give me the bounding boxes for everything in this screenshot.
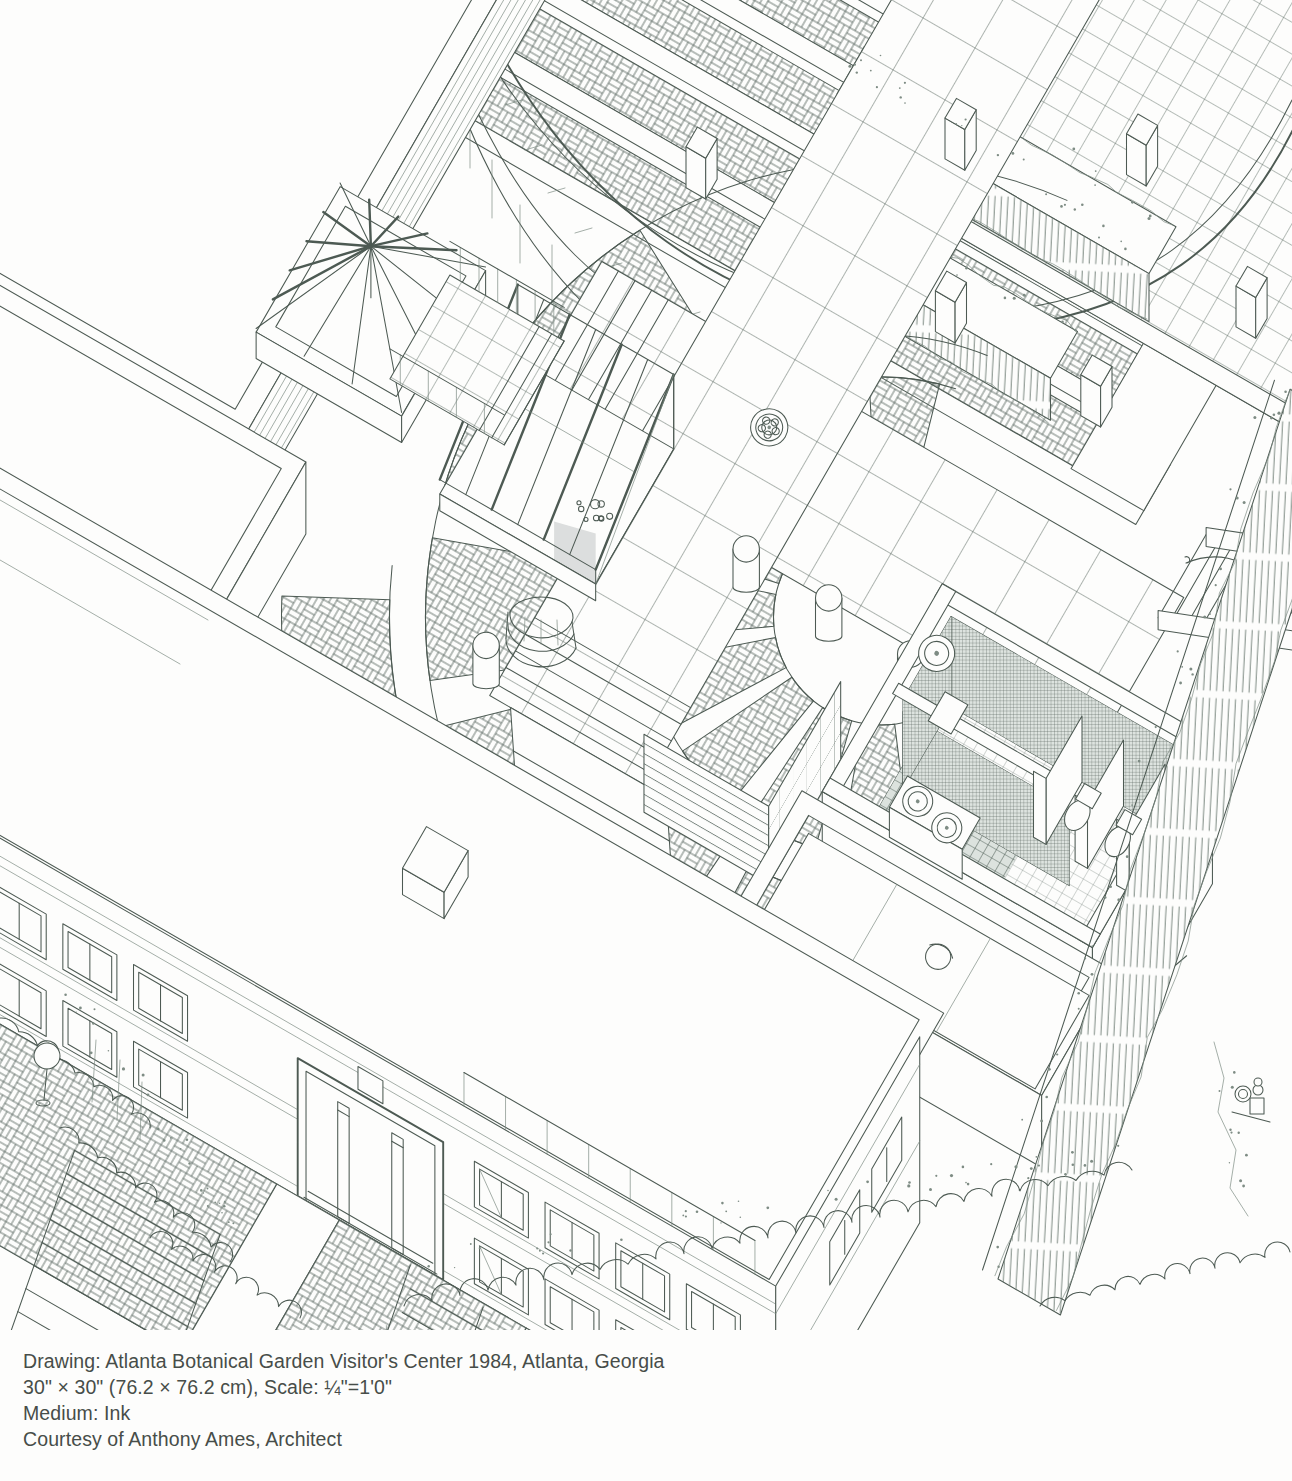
caption-title-line: Drawing: Atlanta Botanical Garden Visito… (23, 1348, 665, 1374)
scanned-page: Drawing: Atlanta Botanical Garden Visito… (0, 0, 1292, 1481)
axonometric-drawing (0, 0, 1292, 1330)
caption-medium-line: Medium: Ink (23, 1400, 665, 1426)
architectural-drawing-plate (0, 0, 1292, 1330)
caption-size-scale-line: 30" × 30" (76.2 × 76.2 cm), Scale: ¼"=1'… (23, 1374, 665, 1400)
caption-credit-line: Courtesy of Anthony Ames, Architect (23, 1426, 665, 1452)
caption-block: Drawing: Atlanta Botanical Garden Visito… (23, 1348, 665, 1452)
